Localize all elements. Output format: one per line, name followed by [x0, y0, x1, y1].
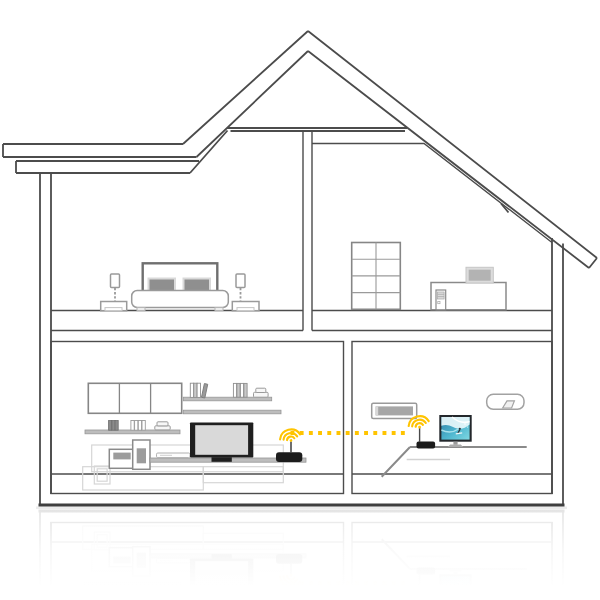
reflection-fade-overlay: [0, 509, 600, 600]
room-outlines: [51, 131, 552, 494]
monitor-surf-video: [439, 415, 471, 447]
pillow: [149, 279, 176, 292]
media-player: [157, 453, 191, 458]
bedroom: [101, 263, 259, 310]
wifi-signal-icon: [278, 427, 301, 444]
speaker-cabinet: [109, 449, 135, 468]
study: [352, 243, 506, 310]
pillow: [184, 279, 211, 292]
books: [109, 421, 171, 431]
flat-screen-tv: [190, 423, 253, 462]
illustration-canvas: [0, 0, 600, 600]
monitor-neck: [453, 442, 457, 445]
side-room: [372, 394, 527, 476]
pc-tower: [436, 290, 446, 310]
desktop-monitor: [466, 267, 493, 283]
floor-reflection: [0, 509, 600, 600]
wall-object: [487, 394, 524, 409]
table-lamp: [236, 274, 245, 301]
bed-foot: [215, 308, 223, 311]
nightstand-base: [105, 308, 122, 311]
speaker-cabinet: [133, 440, 150, 469]
bed-foot: [137, 308, 145, 311]
air-conditioner: [372, 403, 417, 418]
nightstand-base: [237, 308, 254, 311]
table-lamp: [111, 274, 120, 301]
books: [190, 383, 268, 398]
wall-shelf: [183, 410, 281, 414]
tv-stand: [212, 457, 232, 462]
table: [382, 447, 527, 477]
roof: [3, 31, 597, 268]
monitor-base: [448, 445, 463, 447]
house-structure: [3, 31, 597, 509]
wall-cabinets: [88, 383, 181, 413]
bed-mattress: [132, 291, 229, 308]
wifi-receiver: [407, 414, 435, 448]
shelving-unit: [352, 243, 401, 310]
